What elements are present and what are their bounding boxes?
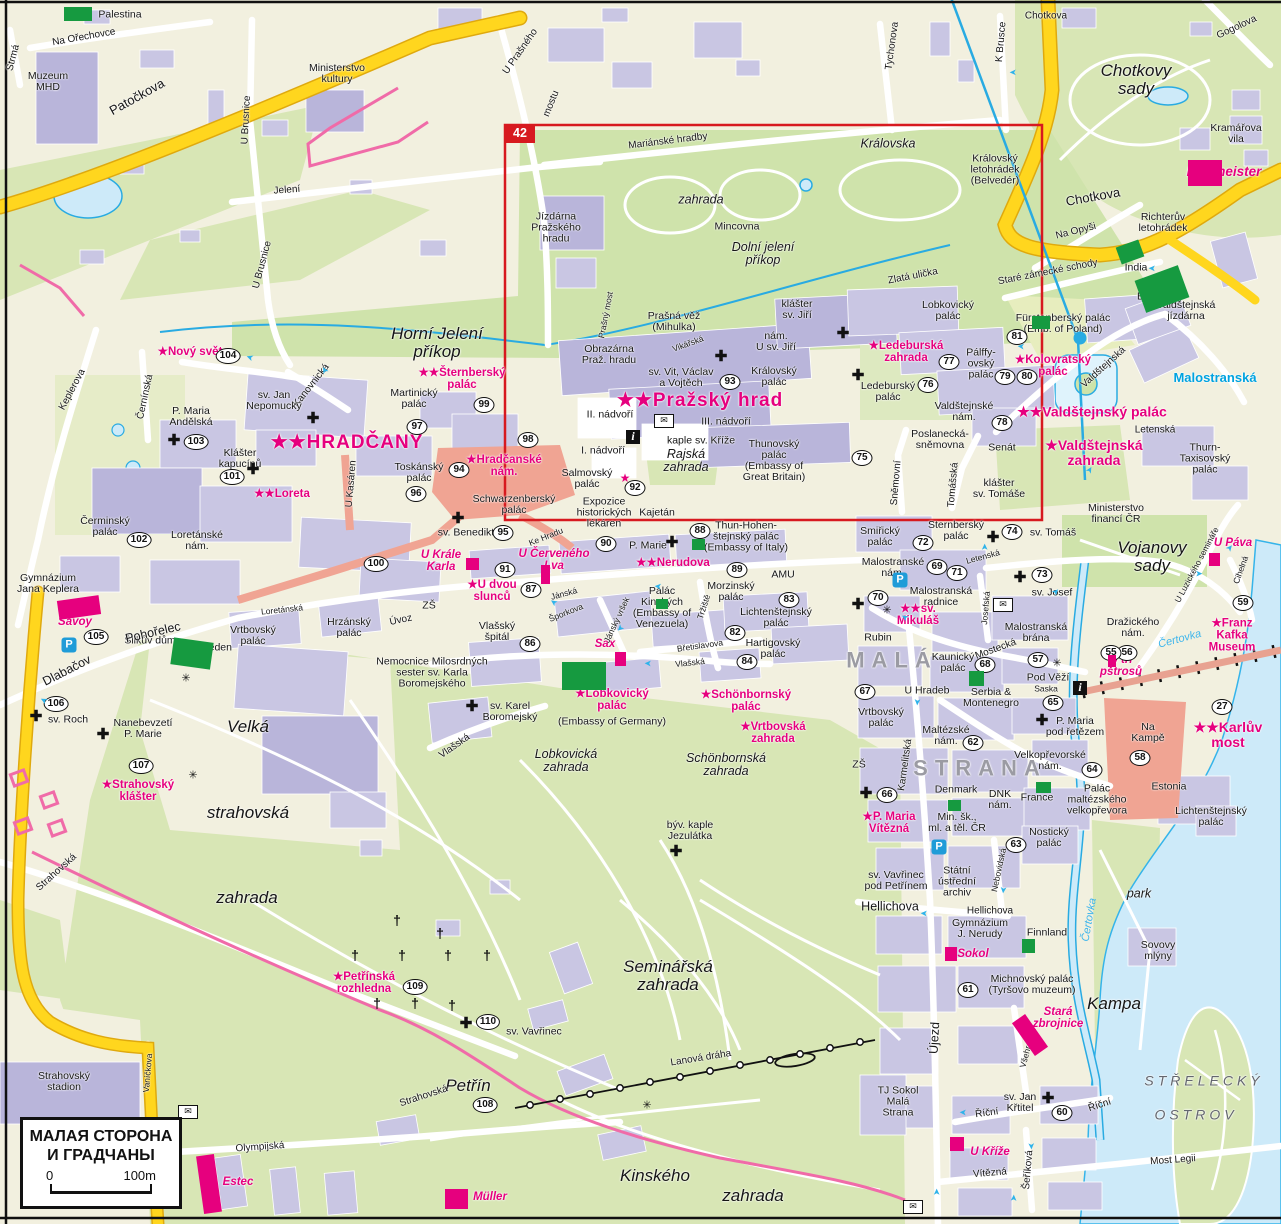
church-icon: ✚ [1042, 1089, 1055, 1107]
hotel-marker [466, 558, 479, 570]
memorial-icon: † [411, 995, 419, 1011]
label-lichtenstejnsky-palac: Lichtenštejnský palác [740, 607, 812, 629]
label-min-sk-ml-a-tel-cr: Min. šk., ml. a těl. ČR [928, 812, 986, 834]
parking-icon: P [932, 840, 947, 855]
label-olympijska: Olympijská [235, 1141, 285, 1155]
direction-arrow-icon: ➤ [912, 698, 921, 706]
prague-city-map: PalestinaNa OřechovceStrmáMuzeum MHDMini… [0, 0, 1281, 1224]
label-strma: Strmá [5, 44, 22, 73]
label-u-cerveneho-lva: U Červeného Lva [519, 548, 590, 572]
label-mincovna: Mincovna [715, 221, 760, 232]
label-sv-benedikt: sv. Benedikt [438, 527, 494, 538]
label-kramarova-vila: Kramářova vila [1210, 123, 1261, 145]
label-sokol: Sokol [957, 948, 988, 960]
hotel-marker [541, 565, 550, 584]
sight-badge-101: 101 [220, 469, 245, 485]
label-prasna-vez-mihulka: Prašná věž (Mihulka) [648, 311, 701, 333]
church-icon: ✚ [452, 509, 465, 527]
info-icon: i [626, 430, 640, 444]
label-kralovsky-letohradek-belveder: Královský letohrádek (Belvedér) [970, 153, 1019, 186]
view-icon: ✳ [882, 604, 891, 617]
label-vlassky-spital: Vlašský špitál [479, 621, 515, 643]
label-statni-ustredni-archiv: Státní ústřední archiv [938, 865, 976, 898]
label-patockova: Patočkova [107, 76, 167, 117]
label-vlasska: Vlašská [438, 733, 473, 762]
label-keplerova: Keplerova [58, 368, 88, 413]
label-certovka: Čertovka [1080, 897, 1099, 942]
label-denmark: Denmark [935, 784, 978, 795]
label-france: France [1021, 792, 1054, 803]
sight-badge-71: 71 [947, 565, 968, 581]
label-kampa: Kampa [1087, 995, 1141, 1013]
label-strahovsky-klaster: ★Strahovský klášter [102, 779, 174, 803]
sight-badge-78: 78 [992, 415, 1013, 431]
label-letenska: Letenská [1135, 426, 1176, 437]
label-senat: Senát [988, 442, 1015, 453]
sight-badge-94: 94 [449, 462, 470, 478]
embassy-marker [1036, 782, 1051, 793]
label-richteruv-letohradek: Richterův letohrádek [1138, 212, 1187, 234]
sight-badge-58: 58 [1130, 750, 1151, 766]
label-lobkovicky-palac: Lobkovický palác [922, 300, 974, 322]
church-icon: ✚ [168, 431, 181, 449]
label-sv-vit-vaclav-a-vojtech: sv. Vit, Václav a Vojtěch [649, 367, 714, 389]
label-seminarska-zahrada: Seminářská zahrada [623, 958, 713, 994]
label-kinskeho: Kinského [620, 1167, 690, 1185]
label-sv-jan-nepomucky: sv. Jan Nepomucký [246, 390, 301, 412]
label-salmovsky-palac: Salmovský palác [562, 468, 613, 490]
label-dolni-jeleni-prikop: Dolní jelení příkop [732, 241, 795, 268]
embassy-marker [1022, 939, 1035, 953]
label-dlabacov: Dlabačov [41, 653, 93, 688]
direction-arrow-icon: ➤ [959, 1107, 967, 1116]
label-strahovska: Strahovská [399, 1084, 450, 1110]
sight-badge-95: 95 [493, 525, 514, 541]
label-ke-hradu: Ke Hradu [528, 526, 565, 548]
label-u-dvou-sluncu: ★U dvou slunců [467, 579, 516, 603]
label-k-brusce: K Brusce [995, 21, 1009, 62]
label-ostrov: OSTROV [1154, 1108, 1237, 1123]
label-malostranska: Malostranská [1173, 371, 1256, 385]
hotel-marker [945, 947, 957, 961]
label-loreta: ★★Loreta [254, 488, 310, 500]
label-valdstejnska-zahrada: ★Valdštejnská zahrada [1045, 438, 1142, 468]
sight-badge-72: 72 [913, 535, 934, 551]
label-u-brusnice: U Brusnice [240, 95, 253, 144]
church-icon: ✚ [466, 697, 479, 715]
label-rajska-zahrada: Rajská zahrada [663, 448, 708, 475]
label-vikarska: Vikářská [671, 334, 705, 354]
label-embassy-of-germany: (Embassy of Germany) [558, 716, 666, 727]
label-thurn-taxisovsky-palac: Thurn- Taxisovský palác [1180, 442, 1231, 475]
label-palac-maltezskeho-velkoprevora: Palác maltézského velkopřevora [1067, 783, 1127, 816]
label-chotkova: Chotkova [1025, 12, 1067, 23]
parking-icon: P [893, 573, 908, 588]
sight-badge-65: 65 [1043, 695, 1064, 711]
hotel-marker [1188, 160, 1222, 186]
label-novy-svet: ★Nový svět [158, 346, 223, 358]
label-ledebursky-palac: Ledeburský palác [861, 381, 915, 403]
memorial-icon: † [351, 947, 359, 963]
label-bretislavova: Břetislavova [676, 638, 723, 653]
direction-arrow-icon: ➤ [1195, 570, 1203, 579]
sight-badge-96: 96 [406, 486, 427, 502]
sight-badge-69: 69 [927, 559, 948, 575]
label-ministerstvo-kultury: Ministerstvo kultury [309, 63, 365, 85]
label-loretanska: Loretánská [261, 603, 304, 616]
church-icon: ✚ [715, 347, 728, 365]
embassy-marker [1032, 316, 1050, 329]
label-chotkova: Chotkova [1065, 185, 1121, 208]
label-jizdarna-prazskeho-hradu: Jízdárna Pražského hradu [531, 211, 581, 244]
label-klaster-sv-jiri: klášter sv. Jiří [782, 299, 813, 321]
label-muller: Müller [473, 1191, 507, 1203]
memorial-icon: † [436, 925, 444, 941]
label-ii-nadvori: II. nádvoří [587, 409, 634, 420]
view-icon: ✳ [181, 672, 190, 685]
label-mala: MALÁ [846, 648, 938, 671]
sight-badge-79: 79 [995, 369, 1016, 385]
hotel-marker [615, 652, 626, 666]
embassy-marker [948, 800, 961, 811]
embassy-marker [692, 539, 705, 550]
hotel-marker [1108, 655, 1116, 667]
label-sv-karel-boromejsky: sv. Karel Boromejský [483, 701, 538, 723]
info-icon: i [1073, 681, 1087, 695]
label-horni-jeleni-prikop: Horní Jelení příkop [391, 325, 483, 361]
label-cihelna: Cihelná [1232, 555, 1250, 585]
label-obrazarna-praz-hradu: Obrazárna Praž. hradu [582, 344, 636, 366]
sight-badge-61: 61 [958, 982, 979, 998]
label-smiricky-palac: Smiřický palác [860, 526, 900, 548]
view-icon: ✳ [642, 1099, 651, 1112]
label-lichtenstejnsky-palac: Lichtenštejnský palác [1175, 806, 1247, 828]
label-nanebevzeti-p-marie: Nanebevzetí P. Marie [114, 718, 173, 740]
label-velkoprevorske-nam: Velkopřevorské nám. [1014, 750, 1086, 772]
memorial-icon: † [393, 912, 401, 928]
view-icon: ✳ [188, 769, 197, 782]
label-layer: PalestinaNa OřechovceStrmáMuzeum MHDMini… [0, 0, 1281, 1224]
view-icon: ✳ [1052, 657, 1061, 670]
label-martinicky-palac: Martinický palác [390, 388, 437, 410]
label-tomasska: Tomášská [947, 462, 961, 508]
label-na-kampe: Na Kampě [1131, 722, 1164, 744]
direction-arrow-icon: ➤ [1017, 341, 1025, 351]
sight-badge-67: 67 [855, 684, 876, 700]
label-tychonova: Tychonova [884, 21, 901, 70]
label-letenska: Letenská [965, 548, 1001, 566]
metro-icon [1074, 332, 1087, 345]
label-tj-sokol-mala-strana: TJ Sokol Malá Strana [878, 1085, 919, 1118]
legend-title-line2: И ГРАДЧАНЫ [26, 1146, 176, 1165]
label-sovovy-mlyny: Sovovy mlýny [1141, 940, 1175, 962]
sight-badge-107: 107 [129, 758, 154, 774]
label-uvoz: Úvoz [389, 613, 414, 628]
mail-icon: ✉ [903, 1200, 923, 1214]
label-strahovska: strahovská [207, 804, 289, 822]
label-nosticky-palac: Nostický palác [1029, 827, 1069, 849]
label-ricni: Říční [975, 1107, 1000, 1121]
label-expozice-historickych-lekaren: Expozice historických lékáren [577, 496, 632, 529]
sight-badge-104: 104 [216, 348, 241, 364]
label-kralovsky-palac: Královský palác [751, 366, 797, 388]
label-michnovsky-palac-tyrsovo-muzeum: Michnovský palác (Tyršovo muzeum) [989, 974, 1076, 996]
label-schonbornsky-palac: ★Schönbornský palác [701, 689, 791, 713]
label-chotkovy-sady: Chotkovy sady [1101, 62, 1172, 98]
sight-badge-64: 64 [1082, 762, 1103, 778]
label-vrtbovsky-palac: Vrtbovský palác [858, 707, 904, 729]
label-pod-vezi: Pod Věží [1027, 672, 1070, 683]
label-hradcany: ★★HRADČANY [271, 433, 424, 453]
label-sv-jan-krtitel: sv. Jan Křtitel [1004, 1092, 1036, 1114]
sight-badge-84: 84 [737, 654, 758, 670]
label-vrtbovska-zahrada: ★Vrtbovská zahrada [740, 721, 805, 745]
label-zahrada: zahrada [722, 1187, 783, 1205]
label-trziste: Tržiště [696, 594, 712, 621]
sight-badge-76: 76 [918, 377, 939, 393]
mail-icon: ✉ [993, 598, 1013, 612]
direction-arrow-icon: ➤ [933, 1188, 942, 1196]
sight-badge-105: 105 [84, 629, 109, 645]
label-u-brusnice: U Brusnice [252, 240, 275, 290]
sight-badge-77: 77 [939, 354, 960, 370]
label-kralovska: Královska [861, 137, 916, 150]
sight-badge-98: 98 [518, 432, 539, 448]
sight-badge-66: 66 [877, 787, 898, 803]
label-strelecky: STŘELECKÝ [1144, 1074, 1263, 1089]
label-poslanecka-snemovna: Poslanecká- sněmovna [911, 429, 969, 451]
label-cerninska: Černínská [136, 374, 156, 421]
sight-badge-91: 91 [495, 562, 516, 578]
label-park: park [1127, 887, 1151, 900]
sight-badge-59: 59 [1233, 595, 1254, 611]
label-strahovsky-stadion: Strahovský stadion [38, 1071, 90, 1093]
label-p-maria-pod-retezem: P. Maria pod řetězem [1046, 716, 1104, 738]
sight-badge-87: 87 [521, 582, 542, 598]
label-most-legii: Most Legii [1150, 1154, 1196, 1168]
label-hellichova: Hellichova [967, 907, 1013, 918]
label-u-hradeb: U Hradeb [905, 685, 950, 696]
label-jansky-vrsek: Jánský vršek [603, 596, 632, 644]
label-petrinska-rozhledna: ★Petřínská rozhledna [333, 971, 395, 995]
label-zs: ZŠ [422, 600, 435, 611]
label-ministerstvo-financi-cr: Ministerstvo financí ČR [1088, 503, 1144, 525]
church-icon: ✚ [247, 460, 260, 478]
inset-number-badge: 42 [505, 124, 535, 143]
sight-badge-88: 88 [690, 523, 711, 539]
sight-badge-60: 60 [1052, 1105, 1073, 1121]
sight-badge-102: 102 [127, 532, 152, 548]
sight-badge-103: 103 [184, 434, 209, 450]
sight-badge-109: 109 [403, 979, 428, 995]
label-gymnazium-j-nerudy: Gymnázium J. Nerudy [952, 918, 1008, 940]
label-lobkovicka-zahrada: Lobkovická zahrada [535, 748, 598, 775]
label-sternbersky-palac: Sternberský palác [928, 520, 984, 542]
label-toskansky-palac: Toskánský palác [394, 462, 443, 484]
label-india: India [1125, 262, 1148, 273]
sight-badge-93: 93 [720, 374, 741, 390]
hotel-marker [445, 1189, 468, 1209]
label-valdstejnske-nam: Valdštejnské nám. [935, 401, 994, 423]
embassy-marker [562, 662, 606, 690]
memorial-icon: † [483, 947, 491, 963]
label-kaunicky-palac: Kaunický palác [932, 652, 975, 674]
label-vojanovy-sady: Vojanovy sady [1117, 539, 1186, 575]
direction-arrow-icon: ➤ [644, 658, 652, 667]
label-zahrada: zahrada [678, 193, 723, 206]
label-franz-kafka-museum: ★Franz Kafka Museum [1209, 618, 1256, 655]
sight-badge-82: 82 [725, 625, 746, 641]
memorial-icon: † [398, 947, 406, 963]
label-u-kasaren: U Kasáren [345, 460, 360, 508]
direction-arrow-icon: ➤ [1026, 1142, 1035, 1150]
label-u-krize: U Kříže [970, 1146, 1010, 1158]
legend-title-line1: МАЛАЯ СТОРОНА [26, 1127, 176, 1146]
sight-badge-73: 73 [1032, 567, 1053, 583]
memorial-icon: † [444, 947, 452, 963]
label-valdstejnsky-palac: ★★Valdštejnský palác [1017, 405, 1167, 420]
label-marianske-hradby: Mariánské hradby [628, 132, 708, 152]
embassy-marker [64, 7, 92, 21]
direction-arrow-icon: ➤ [981, 543, 990, 551]
label-stara-zbrojnice: Stará zbrojnice [1033, 1006, 1083, 1030]
label-muzeum-mhd: Muzeum MHD [28, 71, 68, 93]
label-estec: Estec [223, 1176, 254, 1188]
label-sternbersky-palac: ★★Šternberský palác [418, 367, 505, 391]
label-sv-vavrinec: sv. Vavřinec [506, 1026, 562, 1037]
label-velka: Velká [227, 718, 269, 736]
sight-badge-80: 80 [1017, 369, 1038, 385]
label-vrtbovsky-palac: Vrtbovský palác [230, 625, 276, 647]
label-kajetan: Kajetán [639, 507, 675, 518]
label-karluv-most: ★★Karlův most [1194, 720, 1263, 750]
label-morzinsky-palac: Morzinský palác [707, 581, 754, 603]
label-amu: AMU [771, 569, 794, 580]
hotel-marker [950, 1137, 964, 1151]
label-iii-nadvori: III. nádvoří [701, 416, 751, 427]
church-icon: ✚ [97, 725, 110, 743]
label-palffy-ovsky-palac: Pálffy- ovský palác [966, 347, 996, 380]
church-icon: ✚ [1014, 568, 1027, 586]
label-loretanske-nam: Loretánské nám. [171, 530, 223, 552]
sight-badge-86: 86 [520, 636, 541, 652]
label-klaster-sv-tomase: klášter sv. Tomáše [973, 478, 1025, 500]
label-schwarzenbersky-palac: Schwarzenberský palác [473, 494, 556, 516]
label-serbia-montenegro: Serbia & Montenegro [963, 687, 1019, 709]
label-lobkovicky-palac: ★Lobkovický palác [575, 688, 649, 712]
sight-badge-97: 97 [407, 419, 428, 435]
embassy-marker [656, 599, 668, 609]
label-p-marie: P. Marie [629, 540, 667, 551]
sight-badge-83: 83 [779, 592, 800, 608]
embassy-marker [969, 671, 984, 686]
label-vlasska: Vlašská [675, 657, 706, 669]
label-stare-zamecke-schody: Staré zámecké schody [997, 258, 1098, 288]
label-u-krale-karla: U Krále Karla [421, 549, 461, 573]
label-certovka: Čertovka [1157, 629, 1203, 652]
label-p-maria-vitezna: ★P. Maria Vítězná [863, 811, 916, 835]
label-ujezd: Újezd [928, 1022, 943, 1055]
label-prazsky-hrad: ★★Pražský hrad [617, 391, 783, 411]
label-hellichova: Hellichova [861, 900, 919, 913]
church-icon: ✚ [460, 1014, 473, 1032]
label-hradcanske-nam: ★Hradčanské nám. [466, 454, 542, 478]
memorial-icon: † [373, 995, 381, 1011]
church-icon: ✚ [837, 324, 850, 342]
sight-badge-27: 27 [1212, 699, 1233, 715]
label-hrzansky-palac: Hrzánský palác [327, 617, 371, 639]
sight-badge-57: 57 [1028, 652, 1049, 668]
embassy-marker [170, 637, 213, 669]
label-na-opysi: Na Opyši [1055, 222, 1097, 242]
label-furstenbersky-palac-emb-of-poland: Fürstenberský palác (Emb. of Poland) [1016, 313, 1111, 335]
church-icon: ✚ [860, 784, 873, 802]
label-strahovska: Strahovská [35, 852, 79, 893]
label-rubin: Rubin [864, 632, 891, 643]
label-finnland: Finnland [1027, 927, 1067, 938]
label-thun-hohen-stejnsky-palac-embassy-of-italy: Thun-Hohen- štejnský palác (Embassy of I… [704, 520, 788, 553]
label-thunovsky-palac-embassy-of-great-britain: Thunovský palác (Embassy of Great Britai… [743, 439, 805, 484]
label-p-maria-andelska: P. Maria Andělská [169, 406, 212, 428]
direction-arrow-icon: ➤ [1148, 263, 1156, 272]
label-serikova: Šeříková [1022, 1150, 1036, 1190]
label-gogolova: Gogolova [1215, 14, 1258, 42]
church-icon: ✚ [852, 595, 865, 613]
label-saska: Saska [1034, 685, 1058, 694]
label-ledeburska-zahrada: ★Ledeburská zahrada [869, 340, 944, 364]
label-drazickeho-nam: Dražického nám. [1107, 617, 1160, 639]
label-snemovni: Sněmovní [890, 460, 904, 506]
mail-icon: ✉ [654, 414, 674, 428]
church-icon: ✚ [670, 842, 683, 860]
label-zs: ZŠ [852, 759, 865, 770]
sight-badge-99: 99 [474, 397, 495, 413]
label-malostranska-radnice: Malostranská radnice [910, 586, 972, 608]
hotel-marker [1209, 553, 1220, 566]
scale-start: 0 [46, 1168, 53, 1183]
label-cerminsky-palac: Čerminský palác [80, 516, 130, 538]
direction-arrow-icon: ➤ [1009, 1194, 1018, 1202]
label-prasny-most: Prašný most [597, 291, 615, 339]
memorial-icon: † [448, 997, 456, 1013]
label-lanova-draha: Lanová dráha [670, 1049, 732, 1069]
church-icon: ✚ [30, 707, 43, 725]
scale-bar [50, 1184, 152, 1194]
label-nemocnice-milosrdnych-sester-sv-karla-boromejskeho: Nemocnice Milosrdných sester sv. Karla B… [376, 656, 487, 689]
hotel-marker [196, 1154, 222, 1214]
sight-badge-110: 110 [476, 1014, 500, 1030]
label-u-prasneho: U Prašného [502, 27, 541, 76]
label-josefska: Josefská [980, 591, 992, 625]
label-ricni: Říční [1087, 1097, 1112, 1114]
direction-arrow-icon: ➤ [1009, 68, 1017, 77]
direction-arrow-icon: ➤ [920, 908, 928, 917]
label-sv-tomas: sv. Tomáš [1030, 527, 1076, 538]
label-palestina: Palestina [98, 9, 141, 20]
sight-badge-108: 108 [473, 1097, 498, 1113]
sight-badge-63: 63 [1006, 837, 1027, 853]
hotel-marker [57, 595, 101, 620]
label-kaple-sv-krize: kaple sv. Kříže [667, 435, 735, 446]
label-dnk-nam: DNK nám. [988, 789, 1011, 811]
star-icon: ★ [620, 471, 631, 485]
sight-badge-74: 74 [1002, 524, 1023, 540]
direction-arrow-icon: ➤ [998, 886, 1008, 894]
church-icon: ✚ [1036, 711, 1049, 729]
label-mostu: mostu [542, 89, 562, 118]
label-jeleni: Jelení [273, 185, 300, 197]
label-na-orechovce: Na Ořechovce [52, 27, 117, 49]
